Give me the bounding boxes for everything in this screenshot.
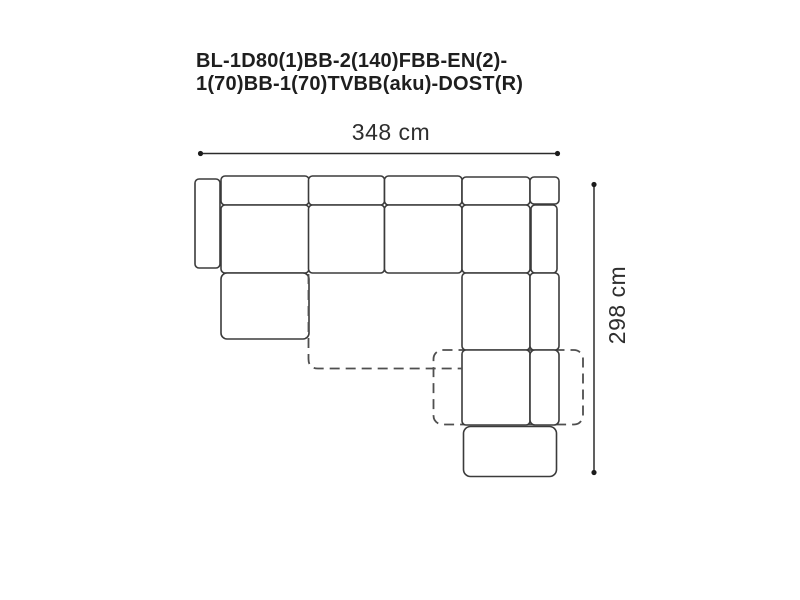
seat-1 <box>221 205 309 273</box>
back-cushion-1 <box>221 176 309 205</box>
dimension-dot <box>591 182 596 187</box>
pullout-extension-dashed-path <box>309 274 463 369</box>
back-cushion-3 <box>385 176 463 205</box>
dimension-dot <box>198 151 203 156</box>
corner-seat <box>462 205 530 273</box>
left-armrest <box>195 179 220 268</box>
back-cushion-4 <box>462 177 530 205</box>
left-chaise <box>221 273 309 339</box>
dimension-dot <box>555 151 560 156</box>
corner-lower-seat-1 <box>462 273 530 350</box>
sofa-schematic-page: BL-1D80(1)BB-2(140)FBB-EN(2)- 1(70)BB-1(… <box>0 0 800 600</box>
height-dimension-line <box>591 182 596 475</box>
right-strip-lower-2 <box>530 350 559 425</box>
right-back-strip <box>531 205 557 273</box>
back-cushion-2 <box>309 176 385 205</box>
seat-3 <box>385 205 463 273</box>
sofa-diagram <box>0 0 800 600</box>
corner-lower-seat-2 <box>462 350 530 425</box>
right-strip-lower-1 <box>530 273 559 350</box>
bottom-ottoman <box>464 427 557 477</box>
corner-back-cushion <box>530 177 559 204</box>
width-dimension-line <box>198 151 560 156</box>
seat-2 <box>309 205 385 273</box>
dimension-dot <box>591 470 596 475</box>
